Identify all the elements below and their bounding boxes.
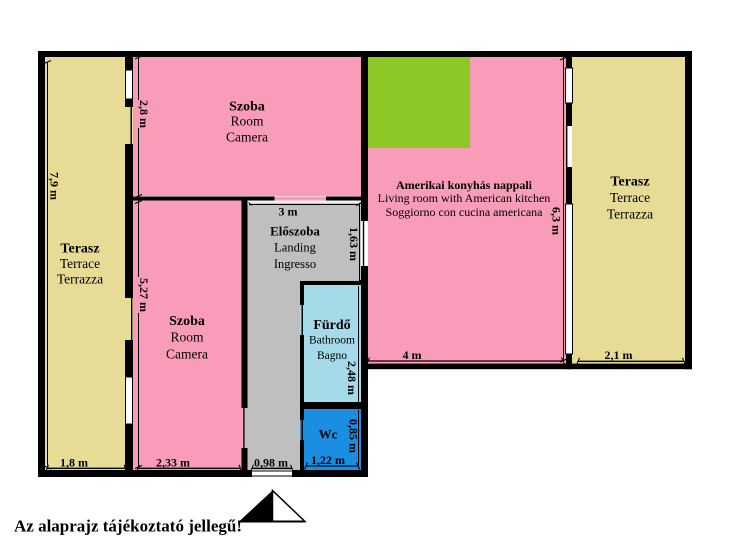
svg-text:Terrace: Terrace: [610, 190, 650, 205]
svg-text:Bagno: Bagno: [317, 350, 347, 362]
svg-text:4 m: 4 m: [403, 348, 422, 362]
svg-text:Landing: Landing: [274, 241, 316, 255]
svg-text:Ingresso: Ingresso: [274, 257, 316, 271]
svg-text:3 m: 3 m: [279, 205, 298, 219]
svg-text:Living room with American kitc: Living room with American kitchen: [378, 191, 551, 205]
svg-text:1,63 m: 1,63 m: [347, 227, 361, 261]
svg-text:Amerikai konyhás nappali: Amerikai konyhás nappali: [396, 178, 533, 192]
svg-text:Camera: Camera: [226, 130, 268, 145]
svg-text:Camera: Camera: [166, 347, 208, 362]
svg-text:2,48 m: 2,48 m: [345, 361, 359, 395]
svg-text:Szoba: Szoba: [229, 100, 265, 115]
svg-text:2,33 m: 2,33 m: [156, 455, 190, 469]
svg-text:Fürdő: Fürdő: [313, 318, 350, 333]
svg-text:7,9 m: 7,9 m: [48, 172, 62, 200]
svg-text:1,22 m: 1,22 m: [311, 453, 345, 467]
svg-text:Előszoba: Előszoba: [270, 224, 320, 239]
svg-text:2,8 m: 2,8 m: [137, 100, 151, 128]
svg-text:Terasz: Terasz: [610, 175, 649, 190]
svg-text:Terasz: Terasz: [60, 242, 99, 257]
svg-text:Terrace: Terrace: [60, 256, 100, 271]
svg-text:Az alaprajz tájékoztató jelleg: Az alaprajz tájékoztató jellegű!: [14, 517, 242, 536]
svg-text:Terrazza: Terrazza: [607, 207, 653, 222]
svg-text:Bathroom: Bathroom: [309, 335, 355, 347]
svg-text:2,1 m: 2,1 m: [605, 348, 633, 362]
svg-text:Wc: Wc: [319, 427, 338, 442]
svg-text:5,27 m: 5,27 m: [137, 278, 151, 312]
svg-text:6,3 m: 6,3 m: [550, 207, 564, 235]
svg-text:Room: Room: [170, 330, 204, 345]
svg-text:1,8 m: 1,8 m: [60, 455, 88, 469]
svg-text:Room: Room: [230, 114, 264, 129]
svg-text:Szoba: Szoba: [169, 314, 205, 329]
svg-text:Soggiorno con cucina americana: Soggiorno con cucina americana: [386, 205, 544, 219]
svg-text:0,85 m: 0,85 m: [347, 419, 361, 453]
svg-text:Terrazza: Terrazza: [57, 272, 103, 287]
svg-text:0,98 m: 0,98 m: [254, 455, 288, 469]
